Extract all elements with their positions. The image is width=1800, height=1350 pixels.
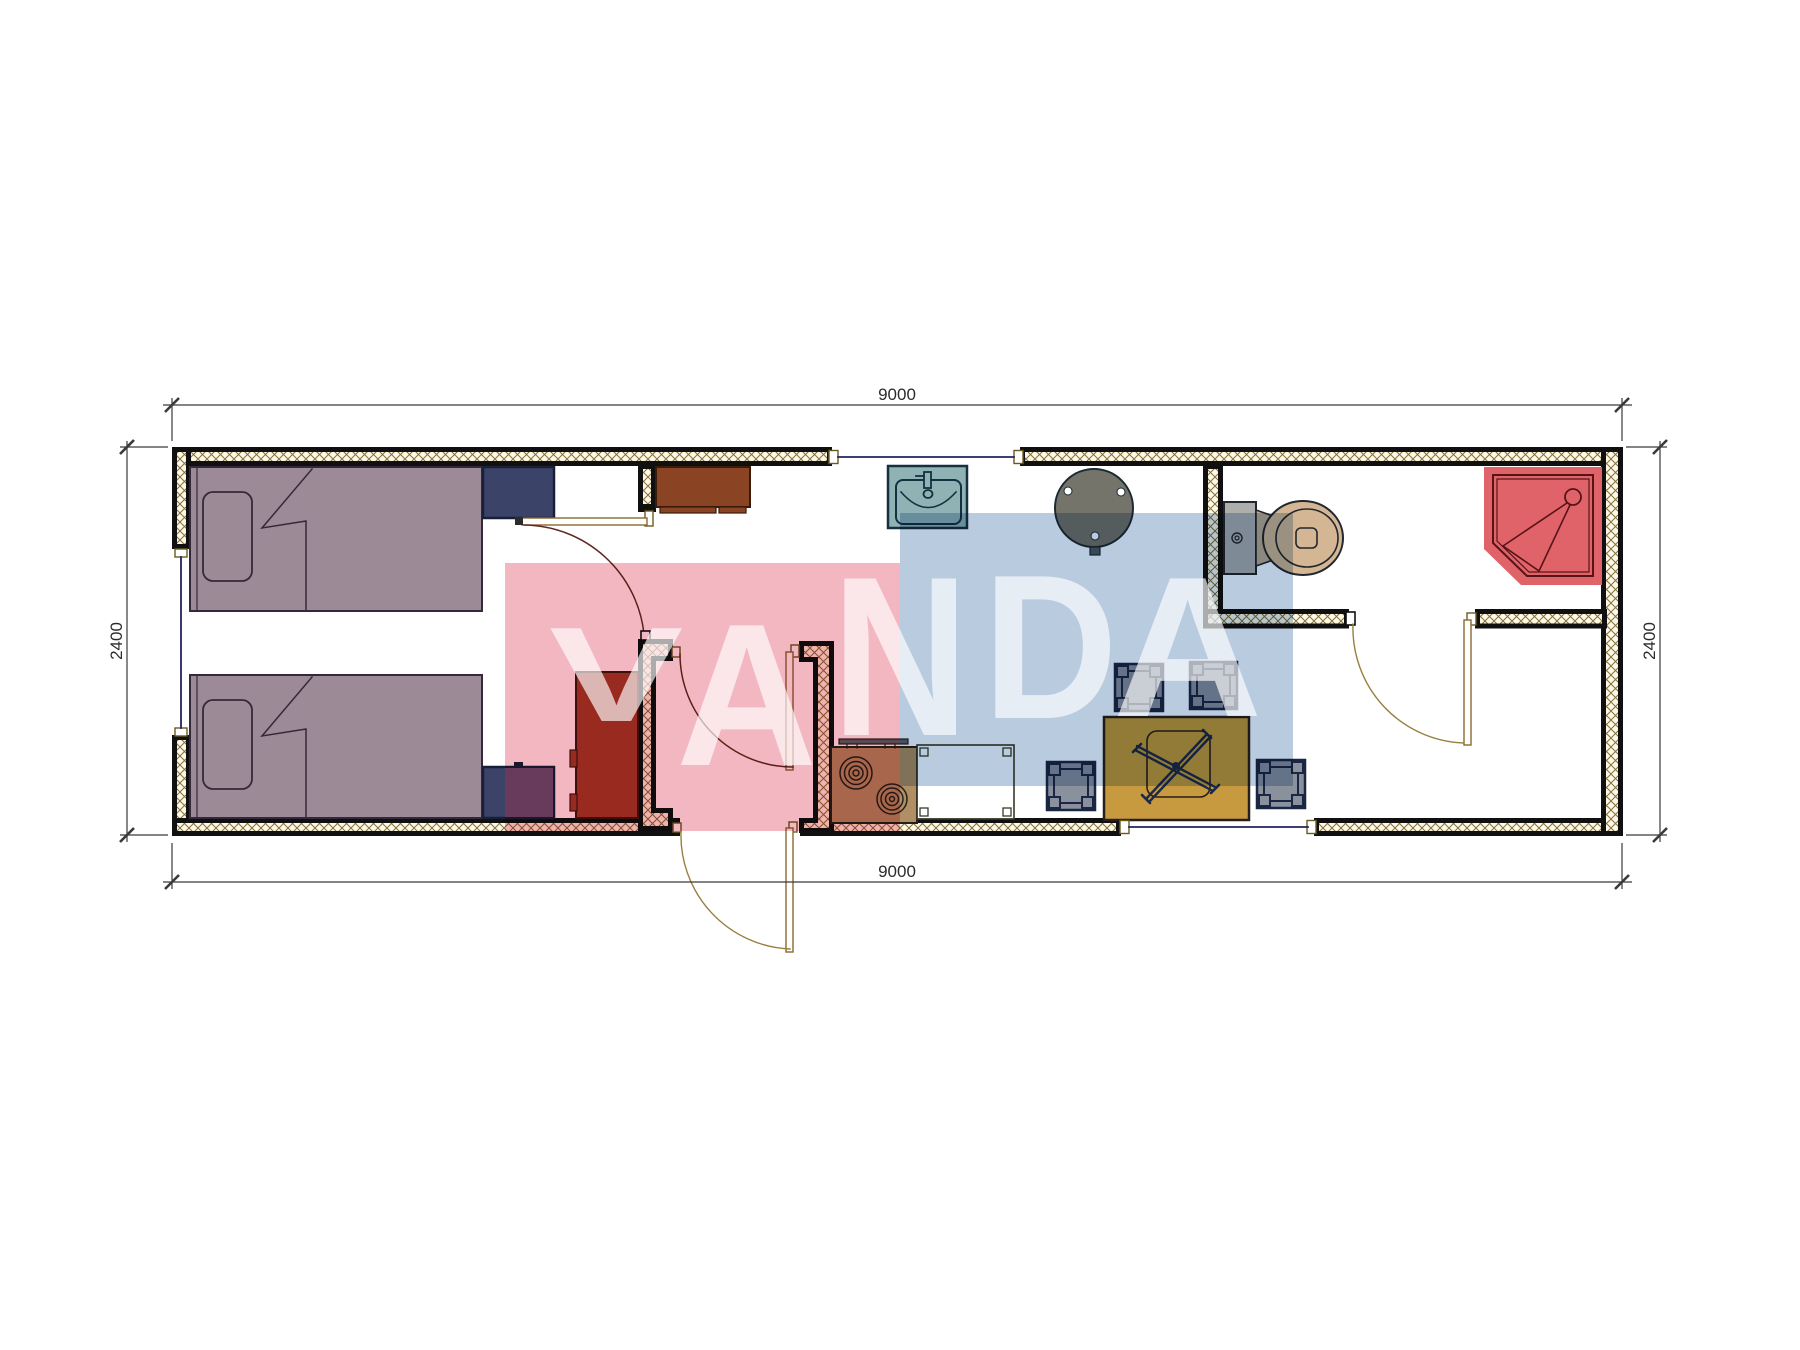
svg-text:A: A xyxy=(1113,536,1263,759)
svg-text:V: V xyxy=(549,600,683,750)
svg-text:D: D xyxy=(983,532,1118,762)
svg-text:9000: 9000 xyxy=(878,385,916,404)
svg-text:2400: 2400 xyxy=(107,622,126,660)
svg-text:A: A xyxy=(676,583,817,809)
svg-text:N: N xyxy=(832,530,969,784)
svg-text:2400: 2400 xyxy=(1640,622,1659,660)
svg-text:9000: 9000 xyxy=(878,862,916,881)
